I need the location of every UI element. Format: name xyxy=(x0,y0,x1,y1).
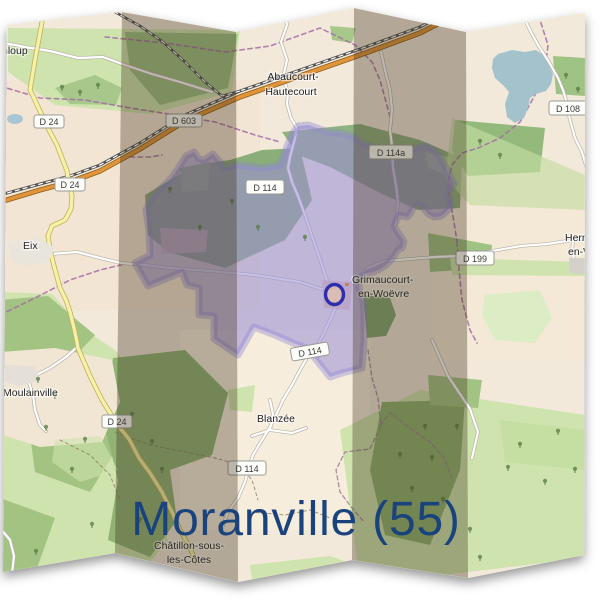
svg-text:Hautecourt: Hautecourt xyxy=(265,86,316,98)
svg-text:Moulainville: Moulainville xyxy=(3,387,58,399)
svg-text:Herm: Herm xyxy=(565,232,591,244)
svg-text:D 114: D 114 xyxy=(253,183,276,193)
svg-text:D 24: D 24 xyxy=(39,117,58,127)
svg-text:D 24: D 24 xyxy=(60,180,79,190)
svg-text:Abaucourt-: Abaucourt- xyxy=(267,71,319,83)
svg-text:D 108: D 108 xyxy=(556,104,580,114)
svg-text:Moranville (55): Moranville (55) xyxy=(131,493,460,546)
svg-text:Eix: Eix xyxy=(23,240,38,252)
svg-text:nloup: nloup xyxy=(2,45,28,57)
svg-text:D 114: D 114 xyxy=(235,464,258,474)
svg-text:Blanzée: Blanzée xyxy=(257,413,295,425)
svg-text:en-W: en-W xyxy=(568,246,593,258)
